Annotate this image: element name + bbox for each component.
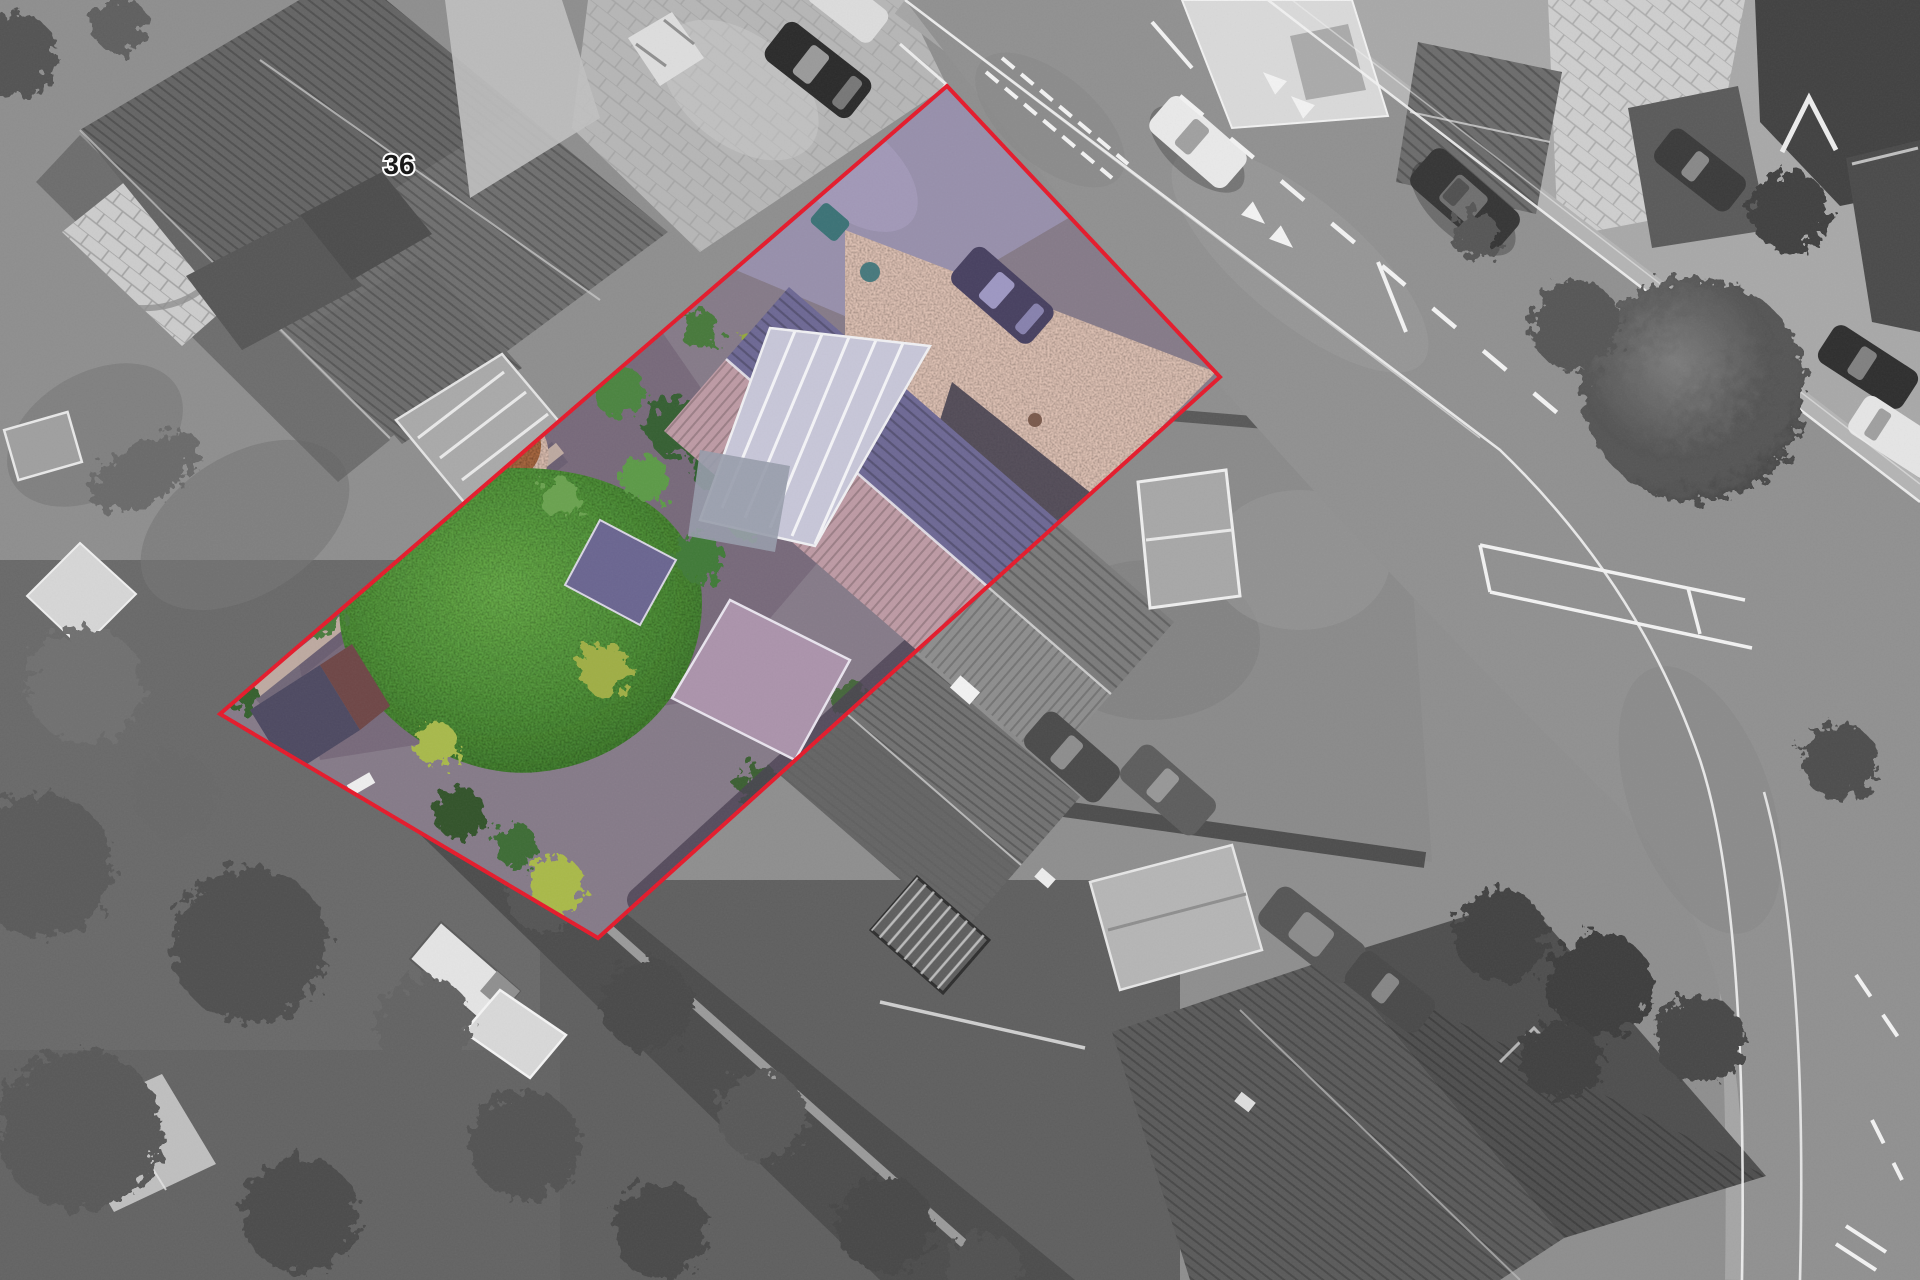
aerial-photo-page: 36 <box>0 0 1920 1280</box>
film-grain-overlay <box>0 0 1920 1280</box>
aerial-photo: 36 <box>0 0 1920 1280</box>
